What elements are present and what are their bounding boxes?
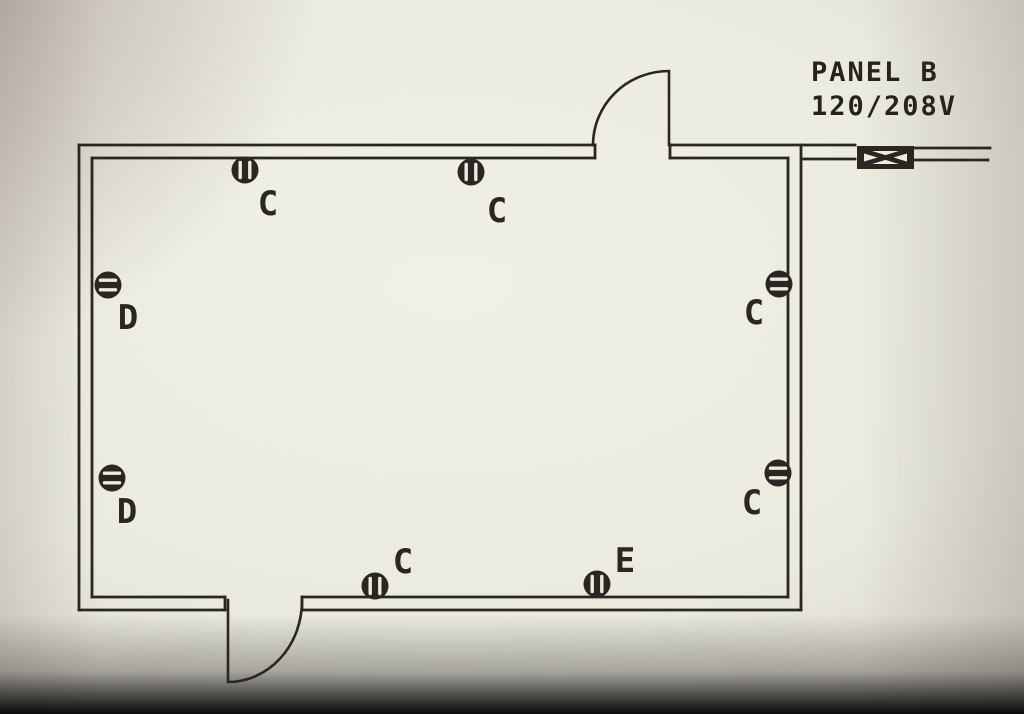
receptacle-icon-right-2 (765, 460, 792, 487)
floor-plan-photo: PANEL B 120/208V C C D D C C C E (0, 0, 1024, 714)
receptacle-icon-bottom-1 (362, 573, 389, 600)
receptacle-icon-top-1 (232, 157, 259, 184)
outlet-label-left-2: D (117, 495, 137, 529)
outlet-label-bottom-2: E (615, 544, 635, 578)
panel-voltage: 120/208V (811, 90, 957, 124)
room-walls (79, 145, 990, 610)
receptacle-icon-top-2 (458, 159, 485, 186)
outlet-label-right-2: C (742, 486, 762, 520)
receptacle-icon-bottom-2 (584, 571, 611, 598)
outlet-label-top-1: C (258, 187, 278, 221)
outlet-label-left-1: D (118, 301, 138, 335)
receptacle-icon-left-2 (99, 465, 126, 492)
door-top (593, 71, 669, 145)
outlet-label-bottom-1: C (393, 545, 413, 579)
outlet-label-top-2: C (487, 194, 507, 228)
panelboard-icon (857, 146, 914, 169)
receptacle-icon-right-1 (766, 271, 793, 298)
panel-name: PANEL B (811, 56, 957, 90)
outlet-label-right-1: C (744, 296, 764, 330)
door-bottom (228, 600, 302, 682)
receptacle-icon-left-1 (95, 272, 122, 299)
panel-label: PANEL B 120/208V (811, 56, 957, 124)
receptacle-symbols (95, 157, 793, 600)
